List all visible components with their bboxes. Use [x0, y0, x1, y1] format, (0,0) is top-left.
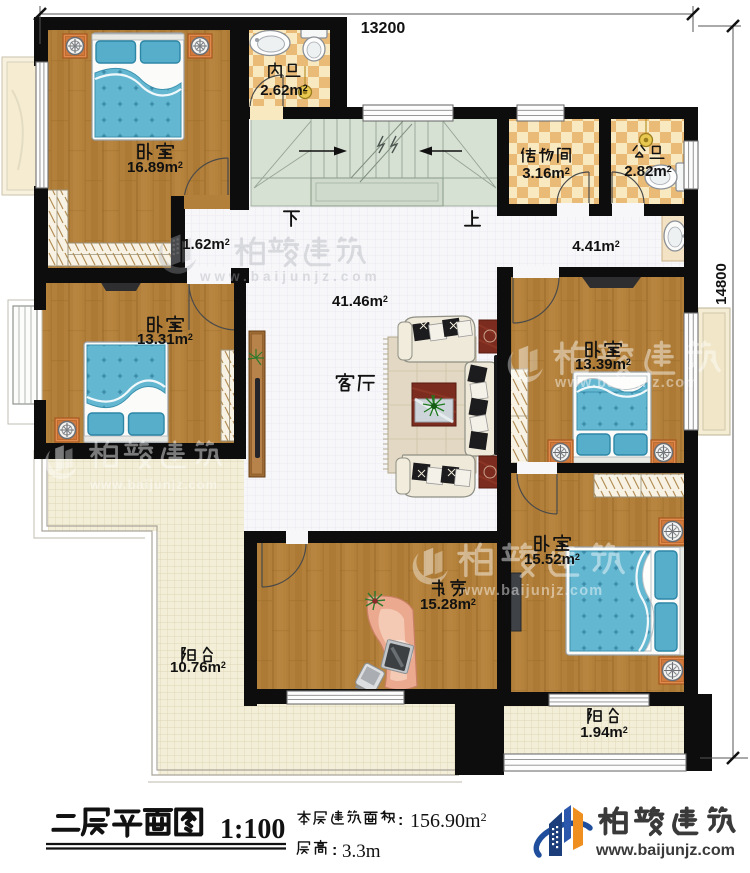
- svg-text:13.39m2: 13.39m2: [575, 356, 631, 373]
- svg-text:3.16m2: 3.16m2: [522, 165, 570, 182]
- svg-text:16.89m2: 16.89m2: [127, 159, 183, 176]
- svg-text:2.82m2: 2.82m2: [624, 163, 672, 180]
- svg-text:www.baijunjz.com: www.baijunjz.com: [89, 477, 218, 492]
- svg-text:1.62m2: 1.62m2: [182, 236, 230, 253]
- svg-text::: :: [398, 812, 403, 829]
- svg-text:41.46m2: 41.46m2: [332, 293, 388, 310]
- svg-text:1:100: 1:100: [220, 814, 285, 845]
- svg-text:1.94m2: 1.94m2: [580, 724, 628, 741]
- svg-text:www.baijunjz.com: www.baijunjz.com: [458, 583, 603, 599]
- svg-text:2.62m2: 2.62m2: [260, 82, 308, 99]
- svg-text::: :: [332, 842, 337, 859]
- svg-text:www.baijunjz.com: www.baijunjz.com: [595, 842, 735, 859]
- svg-text:4.41m2: 4.41m2: [572, 238, 620, 255]
- svg-text:13.31m2: 13.31m2: [137, 331, 193, 348]
- svg-text:15.52m2: 15.52m2: [524, 551, 580, 568]
- svg-text:10.76m2: 10.76m2: [170, 659, 226, 676]
- svg-text:www.baijunjz.com: www.baijunjz.com: [199, 269, 381, 284]
- svg-text:3.3m: 3.3m: [342, 841, 381, 862]
- svg-text:13200: 13200: [361, 20, 406, 37]
- svg-text:www.baijunjz.com: www.baijunjz.com: [554, 375, 699, 391]
- svg-text:15.28m2: 15.28m2: [420, 596, 476, 613]
- svg-text:14800: 14800: [713, 263, 730, 305]
- svg-text:156.90m2: 156.90m2: [410, 810, 487, 832]
